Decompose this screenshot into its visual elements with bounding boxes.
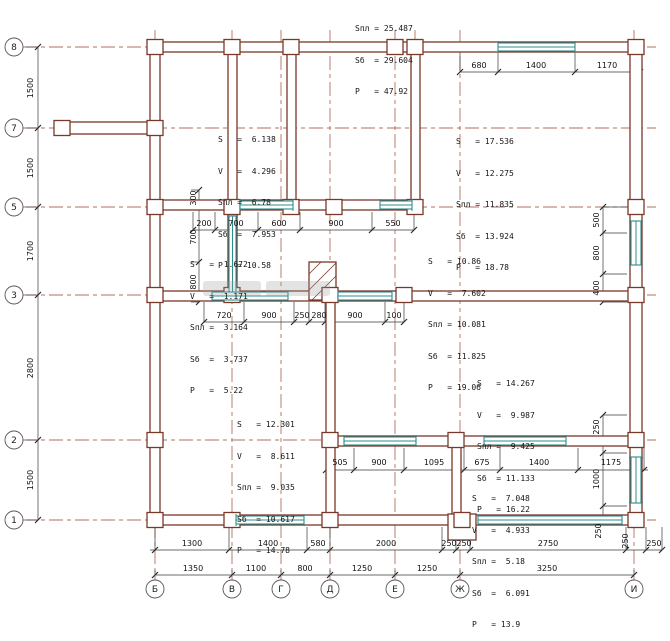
dim-label: 900 — [261, 311, 276, 320]
wall-pilaster — [454, 513, 470, 528]
dim-label: 900 — [371, 458, 386, 467]
annotation-line: V = 7.602 — [428, 289, 486, 300]
dim-label: 250 — [621, 533, 630, 548]
axis-label: 8 — [11, 43, 17, 53]
dim-label: 250 — [441, 539, 456, 548]
dim-label: 680 — [471, 61, 486, 70]
wall-pilaster — [147, 513, 163, 528]
dim-label: 900 — [347, 311, 362, 320]
annotation-line: P = 47.92 — [355, 87, 413, 98]
annotation-line: Sпл = 6.78 — [218, 198, 276, 209]
axis-label: 2 — [11, 436, 17, 446]
dim-label: 500 — [592, 212, 601, 227]
grid-lines — [23, 30, 656, 580]
axis-label: 1 — [11, 516, 17, 526]
axis-label: Г — [278, 585, 284, 595]
dim-label: 400 — [592, 280, 601, 295]
annotation-line: S = 1.672 — [190, 260, 248, 271]
annotation-line: V = 12.275 — [456, 169, 514, 180]
dim-label: 100 — [386, 311, 401, 320]
annotation-line: P = 13.9 — [472, 620, 530, 631]
axis-label: Б — [152, 585, 158, 595]
annotation-line: V = 8.611 — [237, 452, 295, 463]
annotation-line: Sб = 10.617 — [237, 515, 295, 526]
axis-label: Д — [326, 585, 333, 595]
dim-label: 1095 — [424, 458, 444, 467]
dim-label: 1500 — [26, 158, 35, 178]
annotation-line: Sпл = 9.035 — [237, 483, 295, 494]
wall-right — [630, 42, 642, 525]
wall-pilaster — [628, 288, 644, 303]
axis-label: В — [229, 585, 235, 595]
annotation-line: Sпл = 10.081 — [428, 320, 486, 331]
dim-label: 1170 — [597, 61, 617, 70]
dim-label: 2800 — [26, 358, 35, 378]
dim-label: 250 — [592, 419, 601, 434]
annotation-line: V = 4.933 — [472, 526, 530, 537]
annotation-line: V = 9.987 — [477, 411, 535, 422]
floor-plan-canvas: 680 1400 1170 200 700 600 900 550 720 90… — [0, 0, 670, 604]
totals-annotation: Sпл = 25.487 Sб = 29.604 P = 47.92 — [355, 3, 413, 108]
wall-pilaster — [147, 200, 163, 215]
dim-label: 250 — [456, 539, 471, 548]
wall-left — [150, 42, 160, 525]
annotation-line: S = 6.138 — [218, 135, 276, 146]
room-annotation: S = 7.048 V = 4.933 Sпл = 5.18 Sб = 6.09… — [472, 473, 530, 641]
cad-floor-plan-page: { "colors": { "wall": "#7a382a", "axis_l… — [0, 0, 670, 604]
wall-pilaster — [147, 40, 163, 55]
dim-label: 1250 — [352, 564, 372, 573]
annotation-line: S = 7.048 — [472, 494, 530, 505]
dim-label: 800 — [297, 564, 312, 573]
wall-pilasters — [54, 40, 644, 528]
wall-pilaster — [147, 288, 163, 303]
wall-pilaster — [628, 513, 644, 528]
annotation-line: S = 10.86 — [428, 257, 486, 268]
wall-pilaster — [628, 200, 644, 215]
dim-label: 250 — [294, 311, 309, 320]
wall-pilaster — [628, 40, 644, 55]
annotation-line: Sб = 29.604 — [355, 56, 413, 67]
dim-label: 550 — [385, 219, 400, 228]
dim-label: 1500 — [26, 470, 35, 490]
wall-axisD-lower — [326, 295, 335, 525]
watermark-blob — [266, 281, 330, 296]
annotation-line: Sпл = 11.835 — [456, 200, 514, 211]
axis-label: Е — [392, 585, 398, 595]
dim-label: 1500 — [26, 78, 35, 98]
annotation-line: Sпл = 9.425 — [477, 442, 535, 453]
annotation-line: V = 4.296 — [218, 167, 276, 178]
dim-label: 1000 — [592, 469, 601, 489]
annotation-line: Sпл = 25.487 — [355, 24, 413, 35]
annotation-line: S = 12.301 — [237, 420, 295, 431]
wall-pilaster — [147, 121, 163, 136]
dim-label: 250 — [646, 539, 661, 548]
dim-label: 505 — [332, 458, 347, 467]
axis-label: И — [631, 585, 638, 595]
annotation-line: Sб = 3.737 — [190, 355, 248, 366]
dim-label: 3250 — [537, 564, 557, 573]
wall-top-div1 — [287, 42, 296, 210]
wall-pilaster — [322, 433, 338, 448]
dim-label: 900 — [328, 219, 343, 228]
axis-label: 7 — [11, 124, 17, 134]
wall-pilaster — [283, 40, 299, 55]
annotation-line: Sпл = 3.164 — [190, 323, 248, 334]
dim-label: 1300 — [182, 539, 202, 548]
dim-label: 200 — [196, 219, 211, 228]
dim-label: 2750 — [538, 539, 558, 548]
wall-pilaster — [322, 513, 338, 528]
dim-label: 580 — [310, 539, 325, 548]
annotation-line: V = 1.171 — [190, 292, 248, 303]
annotation-line: Sб = 6.091 — [472, 589, 530, 600]
dim-label: 1350 — [183, 564, 203, 573]
annotation-line: P = 14.78 — [237, 546, 295, 557]
annotation-line: S = 17.536 — [456, 137, 514, 148]
annotation-line: Sпл = 5.18 — [472, 557, 530, 568]
axis-label: Ж — [455, 585, 465, 595]
dim-label: 800 — [592, 245, 601, 260]
wall-pilaster — [628, 433, 644, 448]
annotation-line: S = 14.267 — [477, 379, 535, 390]
dim-label: 1250 — [417, 564, 437, 573]
dim-label: 2000 — [376, 539, 396, 548]
axis-label: 3 — [11, 291, 17, 301]
wall-pilaster — [54, 121, 70, 136]
dim-label: 250 — [594, 523, 603, 538]
dim-label: 1175 — [601, 458, 621, 467]
dim-label: 280 — [311, 311, 326, 320]
dim-label: 300 — [189, 190, 198, 205]
dim-label: 1700 — [26, 241, 35, 261]
room-annotation: S = 12.301 V = 8.611 Sпл = 9.035 Sб = 10… — [237, 399, 295, 567]
wall-pilaster — [147, 433, 163, 448]
annotation-line: P = 5.22 — [190, 386, 248, 397]
wall-pilaster — [224, 40, 240, 55]
wall-pilaster — [396, 288, 412, 303]
wall-stub-axis7 — [62, 122, 154, 134]
room-annotation: S = 1.672 V = 1.171 Sпл = 3.164 Sб = 3.7… — [190, 239, 248, 407]
dimension-labels: 680 1400 1170 200 700 600 900 550 720 90… — [26, 61, 662, 573]
wall-pilaster — [448, 433, 464, 448]
walls — [54, 40, 644, 541]
axis-label: 5 — [11, 203, 17, 213]
dim-label: 1400 — [526, 61, 546, 70]
wall-pilaster — [326, 200, 342, 215]
